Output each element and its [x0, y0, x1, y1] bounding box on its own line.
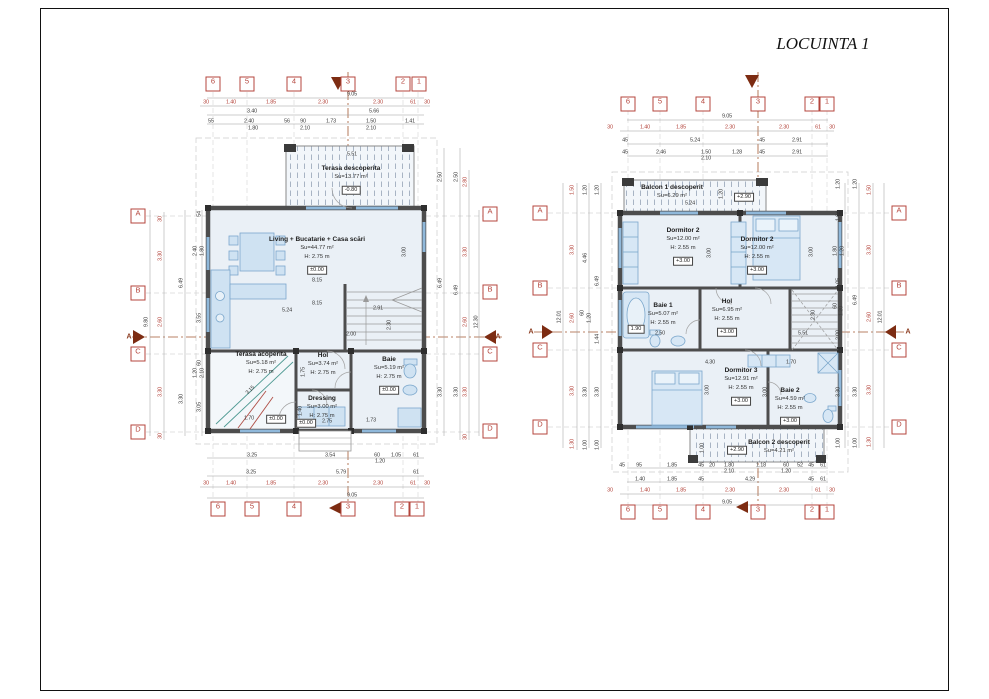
dimension-label: 1.40: [635, 477, 645, 483]
dimension-label: 1.80: [200, 246, 206, 256]
dimension-label: 3.30: [595, 387, 601, 397]
dimension-label: 30: [424, 100, 430, 106]
grid-label: 3: [751, 97, 766, 112]
dimension-label: 3.25: [246, 470, 256, 476]
grid-label: C: [533, 343, 548, 358]
room-name: Dressing: [308, 396, 336, 403]
dimension-label: 5.66: [369, 109, 379, 115]
room-area: Su=12.91 m²: [724, 377, 757, 383]
dimension-label: 2.91: [792, 138, 802, 144]
dimension-label: 45: [759, 150, 765, 156]
dimension-label: 4.29: [745, 477, 755, 483]
room-name: Baie 2: [780, 388, 799, 395]
sink: [403, 385, 417, 395]
dimension-label: 1.40: [640, 488, 650, 494]
level-badge: +3.00: [731, 397, 751, 406]
dimension-label: 30: [203, 100, 209, 106]
grid-label: 1: [820, 97, 835, 112]
dimension-label: 1.30: [867, 437, 873, 447]
sink: [671, 336, 685, 346]
dimension-label: 1.00: [700, 443, 706, 453]
dimension-label: 1.50: [366, 119, 376, 125]
dimension-label: 1.20: [836, 179, 842, 189]
room-area: Su=5.18 m²: [246, 361, 276, 367]
dimension-label: 2.50: [454, 172, 460, 182]
grid-label: C: [892, 343, 907, 358]
level-badge: +2.90: [734, 193, 754, 202]
grid-label: A: [131, 209, 146, 224]
dimension-label: 1.85: [667, 477, 677, 483]
dimension-label: 1.50: [867, 185, 873, 195]
dimension-label: 3.30: [867, 385, 873, 395]
level-badge: ±0.00: [379, 386, 399, 395]
toilet: [650, 335, 660, 347]
grid-label: D: [892, 420, 907, 435]
dimension-label: 2.30: [811, 310, 817, 320]
dimension-label: 30: [424, 481, 430, 487]
grid-label: B: [533, 281, 548, 296]
dimension-label: 2.60: [158, 317, 164, 327]
dimension-label: 1.00: [853, 438, 859, 448]
grid-label: B: [892, 281, 907, 296]
dimension-label: 6.49: [595, 276, 601, 286]
room-height: H: 2.75 m: [376, 375, 401, 381]
dimension-label: 45: [698, 463, 704, 469]
room-area: Su=44.77 m²: [300, 246, 333, 252]
dimension-label: 2.50: [655, 331, 665, 337]
dimension-label: 30: [158, 216, 164, 222]
wardrobe: [731, 222, 746, 284]
toilet: [404, 364, 416, 378]
room-name: Living + Bucatarie + Casa scări: [269, 237, 365, 244]
dimension-label: 45: [808, 477, 814, 483]
dimension-label: 30: [463, 434, 469, 440]
grid-label: 2: [805, 505, 820, 520]
dimension-label: 30: [829, 125, 835, 131]
dimension-label: 95: [636, 463, 642, 469]
grid-label: B: [483, 285, 498, 300]
room-name: Baie: [382, 357, 396, 364]
grid-label: 6: [211, 502, 226, 517]
grid-label: 4: [696, 97, 711, 112]
dimension-label: 45: [808, 463, 814, 469]
dimension-label: 3.30: [583, 387, 589, 397]
room-name: Dormitor 2: [741, 237, 774, 244]
dimension-label: 2.10: [200, 368, 206, 378]
dimension-label: 8.15: [312, 278, 322, 284]
dimension-label: 1.44: [595, 334, 601, 344]
dimension-label: 1.73: [326, 119, 336, 125]
dimension-label: 3.30: [158, 251, 164, 261]
grid-label: D: [533, 420, 548, 435]
dimension-label: 3.30: [463, 247, 469, 257]
washer: [398, 408, 421, 427]
dimension-label: 2.50: [438, 172, 444, 182]
dimension-label: 4.30: [705, 360, 715, 366]
dimension-label: 1.30: [570, 439, 576, 449]
dimension-label: 5.51: [347, 152, 357, 158]
dimension-label: 45: [622, 138, 628, 144]
level-badge: +3.00: [673, 257, 693, 266]
dimension-label: 2.30: [725, 488, 735, 494]
toilet: [823, 410, 833, 423]
dimension-label: 6.49: [853, 295, 859, 305]
dimension-label: 61: [815, 488, 821, 494]
dimension-label: 1.70: [786, 360, 796, 366]
room-name: Balcon 2 descoperit: [748, 440, 810, 447]
dimension-label: 30: [158, 433, 164, 439]
dimension-label: 60: [197, 360, 203, 366]
dimension-label: 30: [829, 488, 835, 494]
room-area: Su=5.07 m²: [648, 312, 678, 318]
dimension-label: 9.05: [347, 493, 357, 499]
dimension-label: 61: [410, 100, 416, 106]
dimension-label: 3.30: [438, 387, 444, 397]
dimension-label: 61: [815, 125, 821, 131]
dimension-label: 1.04: [836, 211, 842, 221]
dimension-label: 5.24: [685, 201, 695, 207]
dimension-label: 1.20: [375, 459, 385, 465]
dimension-label: 12.01: [878, 311, 884, 324]
dimension-label: 2.30: [725, 125, 735, 131]
dimension-label: 1.40: [640, 125, 650, 131]
dimension-label: 52: [797, 463, 803, 469]
room-area: Su=4.21 m²: [764, 449, 794, 455]
dimension-label: 90: [300, 119, 306, 125]
section-label: A: [495, 334, 500, 341]
dimension-label: 61: [413, 453, 419, 459]
grid-label: 4: [696, 505, 711, 520]
room-name: Baie 1: [653, 303, 672, 310]
dimension-label: 1.80: [833, 246, 839, 256]
dimension-label: 2.10: [724, 469, 734, 475]
dimension-label: 1.20: [781, 469, 791, 475]
room-height: H: 2.55 m: [650, 321, 675, 327]
grid-label: D: [483, 424, 498, 439]
grid-label: 3: [751, 505, 766, 520]
dimension-label: 3.00: [809, 247, 815, 257]
dimension-label: 12.01: [557, 311, 563, 324]
dimension-label: 1.05: [391, 453, 401, 459]
section-label: A: [528, 329, 533, 336]
room-height: H: 2.75 m: [310, 371, 335, 377]
dimension-label: 1.50: [570, 185, 576, 195]
dimension-label: 2.40: [193, 246, 199, 256]
grid-label: 1: [412, 77, 427, 92]
room-area: Su=13.77 m²: [334, 175, 367, 181]
sheet: LOCUINTA 1: [0, 0, 989, 699]
dimension-label: 2.60: [570, 313, 576, 323]
dimension-label: 5.79: [336, 470, 346, 476]
dimension-label: 6.49: [438, 278, 444, 288]
dimension-label: 1.20: [719, 189, 725, 199]
dimension-label: 2.30: [373, 481, 383, 487]
grid-label: 5: [245, 502, 260, 517]
level-badge: +3.00: [780, 417, 800, 426]
room-height: H: 2.75 m: [304, 255, 329, 261]
room-height: H: 2.55 m: [670, 246, 695, 252]
dimension-label: 3.55: [197, 313, 203, 323]
room-name: Terasa acoperita: [235, 352, 286, 359]
level-badge: +2.90: [727, 446, 747, 455]
level-badge: +3.00: [717, 328, 737, 337]
dimension-label: 3.30: [853, 387, 859, 397]
dimension-label: 1.20: [853, 179, 859, 189]
level-badge: -0.80: [342, 186, 361, 195]
dimension-label: 2.30: [387, 320, 393, 330]
dimension-label: 9.80: [144, 317, 150, 327]
room-name: Dormitor 3: [725, 368, 758, 375]
dimension-label: 6.49: [454, 285, 460, 295]
grid-label: 1: [820, 505, 835, 520]
grid-label: D: [131, 425, 146, 440]
dimension-label: 61: [820, 477, 826, 483]
dimension-label: 2.91: [792, 150, 802, 156]
dimension-label: 45: [759, 138, 765, 144]
dimension-label: 2.91: [373, 306, 383, 312]
dimension-label: 1.28: [732, 150, 742, 156]
dimension-label: 60: [580, 310, 586, 316]
dimension-label: 2.40: [244, 119, 254, 125]
dimension-label: 2.10: [701, 156, 711, 162]
dimension-label: 5.24: [690, 138, 700, 144]
dimension-label: 3.00: [705, 385, 711, 395]
dimension-label: 1.18: [756, 463, 766, 469]
room-area: Su=12.00 m²: [666, 237, 699, 243]
dimension-label: 3.25: [247, 453, 257, 459]
dimension-label: 1.20: [840, 246, 846, 256]
dimension-label: 3.54: [325, 453, 335, 459]
room-height: H: 2.55 m: [714, 317, 739, 323]
sink: [804, 394, 816, 403]
room-area: Su=5.19 m²: [374, 366, 404, 372]
dimension-label: 1.40: [226, 481, 236, 487]
dimension-label: 1.85: [266, 481, 276, 487]
dimension-label: 1.85: [676, 488, 686, 494]
dimension-label: 45: [619, 463, 625, 469]
dimension-label: 1.20: [595, 185, 601, 195]
room-name: Hol: [722, 299, 732, 306]
grid-label: B: [131, 286, 146, 301]
grid-label: 5: [240, 77, 255, 92]
dimension-label: 56: [284, 119, 290, 125]
dimension-label: 1.40: [226, 100, 236, 106]
dimension-label: 2.46: [656, 150, 666, 156]
dimension-label: 3.30: [867, 245, 873, 255]
grid-label: C: [131, 347, 146, 362]
wardrobe: [748, 355, 790, 367]
dimension-label: 2.30: [318, 100, 328, 106]
dimension-label: 9.05: [722, 114, 732, 120]
grid-label: 2: [396, 77, 411, 92]
dimension-label: 3.30: [570, 386, 576, 396]
dimension-label: 9.05: [347, 92, 357, 98]
dimension-label: 1.70: [244, 416, 254, 422]
dimension-label: 1.85: [676, 125, 686, 131]
dimension-label: 30: [607, 125, 613, 131]
grid-label: 6: [206, 77, 221, 92]
grid-label: A: [533, 206, 548, 221]
dimension-label: 54: [197, 211, 203, 217]
dimension-label: 2.60: [463, 317, 469, 327]
dimension-label: 5.51: [798, 331, 808, 337]
dimension-label: 1.20: [583, 185, 589, 195]
dimension-label: 3.30: [836, 387, 842, 397]
grid-label: 6: [621, 97, 636, 112]
dimension-label: 12.30: [474, 316, 480, 329]
dimension-label: 2.80: [463, 177, 469, 187]
dimension-label: 30: [607, 488, 613, 494]
grid-label: A: [483, 207, 498, 222]
dimension-label: 3.30: [179, 394, 185, 404]
dimension-label: 2.30: [318, 481, 328, 487]
dimension-label: 2.30: [373, 100, 383, 106]
room-area: Su=6.95 m²: [712, 308, 742, 314]
grid-label: 2: [395, 502, 410, 517]
dimension-label: 61: [413, 470, 419, 476]
dimension-label: 9.05: [722, 500, 732, 506]
grid-label: 4: [287, 77, 302, 92]
grid-label: A: [892, 206, 907, 221]
room-area: Su=12.00 m²: [740, 246, 773, 252]
dimension-label: 2.00: [836, 330, 842, 340]
dimension-label: 1.80: [248, 126, 258, 132]
room-area: Su=3.00 m²: [307, 405, 337, 411]
dimension-label: 1.00: [583, 440, 589, 450]
first-floor-plan: [534, 72, 906, 518]
dimension-label: 3.30: [570, 245, 576, 255]
room-name: Balcon 1 descoperit: [641, 185, 703, 192]
dimension-label: 1.73: [366, 418, 376, 424]
room-height: H: 2.55 m: [728, 386, 753, 392]
dimension-label: 3.30: [158, 387, 164, 397]
grid-label: 5: [653, 505, 668, 520]
level-badge: 1.90: [628, 325, 645, 334]
dimension-label: 3.00: [763, 387, 769, 397]
dimension-label: 1.20: [839, 306, 845, 316]
level-badge: ±0.00: [307, 266, 327, 275]
dimension-label: 3.40: [247, 109, 257, 115]
dimension-label: 61: [820, 463, 826, 469]
level-badge: ±0.00: [266, 415, 286, 424]
dimension-label: 2.00: [346, 332, 356, 338]
grid-label: 2: [805, 97, 820, 112]
room-name: Terasa descoperita: [322, 166, 381, 173]
dimension-label: 2.30: [779, 125, 789, 131]
room-area: Su=6.29 m²: [657, 194, 687, 200]
dimension-label: 1.00: [836, 438, 842, 448]
dimension-label: 1.40: [298, 406, 304, 416]
section-label: A: [905, 329, 910, 336]
wardrobe: [623, 222, 638, 284]
dimension-label: 2.60: [867, 312, 873, 322]
dimension-label: 1.00: [595, 440, 601, 450]
grid-label: 3: [341, 502, 356, 517]
grid-label: 5: [653, 97, 668, 112]
dimension-label: 3.00: [707, 248, 713, 258]
dimension-label: 1.20: [587, 313, 593, 323]
grid-label: 6: [621, 505, 636, 520]
grid-label: 3: [341, 77, 356, 92]
dimension-label: 2.30: [779, 488, 789, 494]
dimension-label: 4.46: [583, 253, 589, 263]
dimension-label: 55: [208, 119, 214, 125]
dimension-label: 45: [698, 477, 704, 483]
dimension-label: 8.15: [312, 301, 322, 307]
grid-label: 4: [287, 502, 302, 517]
dimension-label: 1.41: [405, 119, 415, 125]
dimension-label: 45: [622, 150, 628, 156]
grid-label: 1: [410, 502, 425, 517]
dimension-label: 2.75: [322, 419, 332, 425]
room-name: Hol: [318, 353, 328, 360]
dimension-label: 3.05: [197, 402, 203, 412]
dimension-label: 3.30: [454, 387, 460, 397]
dimension-label: 20: [709, 463, 715, 469]
room-height: H: 2.55 m: [744, 255, 769, 261]
level-badge: +3.00: [747, 266, 767, 275]
ground-floor-plan: [132, 72, 502, 516]
dimension-label: 1.75: [301, 367, 307, 377]
dimension-label: 2.10: [366, 126, 376, 132]
dimension-label: 30: [203, 481, 209, 487]
room-height: H: 2.75 m: [248, 370, 273, 376]
level-badge: ±0.00: [296, 419, 316, 428]
section-label: A: [126, 334, 131, 341]
dimension-label: 1.05: [836, 278, 842, 288]
dimension-label: 2.10: [300, 126, 310, 132]
dimension-label: 1.85: [667, 463, 677, 469]
dimension-label: 5.24: [282, 308, 292, 314]
dimension-label: 1.85: [266, 100, 276, 106]
room-height: H: 2.55 m: [777, 406, 802, 412]
dimension-label: 3.30: [463, 387, 469, 397]
room-area: Su=4.59 m²: [775, 397, 805, 403]
room-name: Dormitor 2: [667, 228, 700, 235]
dimension-label: 1.20: [193, 368, 199, 378]
room-area: Su=3.74 m²: [308, 362, 338, 368]
dimension-label: 3.00: [402, 247, 408, 257]
dimension-label: 6.49: [179, 278, 185, 288]
kitchen-counter: [211, 270, 230, 348]
grid-label: C: [483, 347, 498, 362]
dimension-label: 61: [410, 481, 416, 487]
